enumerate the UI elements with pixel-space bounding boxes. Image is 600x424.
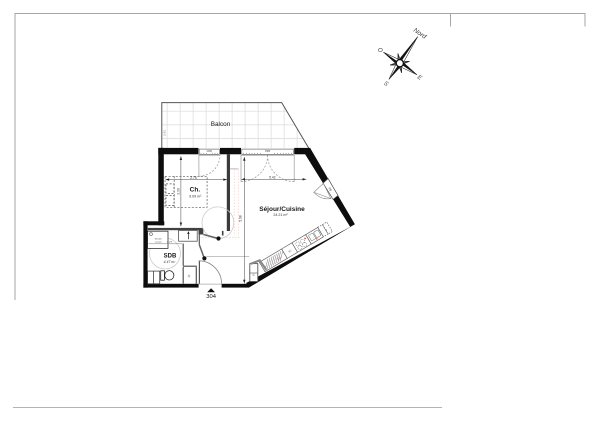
svg-text:9.09 m²: 9.09 m²: [189, 194, 202, 198]
svg-text:304: 304: [206, 294, 216, 300]
svg-text:4.47 m²: 4.47 m²: [164, 260, 176, 264]
svg-text:Séjour/Cuisine: Séjour/Cuisine: [259, 206, 305, 213]
svg-text:5.98: 5.98: [239, 215, 243, 222]
svg-text:vasque: vasque: [155, 241, 163, 243]
svg-text:2.75: 2.75: [190, 176, 197, 180]
svg-text:CF8: CF8: [207, 149, 213, 153]
svg-text:1.77: 1.77: [167, 240, 173, 244]
svg-text:3.30: 3.30: [177, 188, 181, 195]
svg-text:PF8: PF8: [265, 149, 270, 153]
svg-text:2.91: 2.91: [162, 130, 166, 136]
svg-text:Balcon: Balcon: [211, 121, 231, 128]
svg-text:SDB: SDB: [164, 253, 177, 259]
svg-text:5.42: 5.42: [269, 175, 276, 179]
svg-text:Meuble: Meuble: [155, 239, 163, 241]
svg-text:Ch.: Ch.: [190, 187, 201, 194]
svg-text:24.21 m²: 24.21 m²: [273, 213, 288, 217]
